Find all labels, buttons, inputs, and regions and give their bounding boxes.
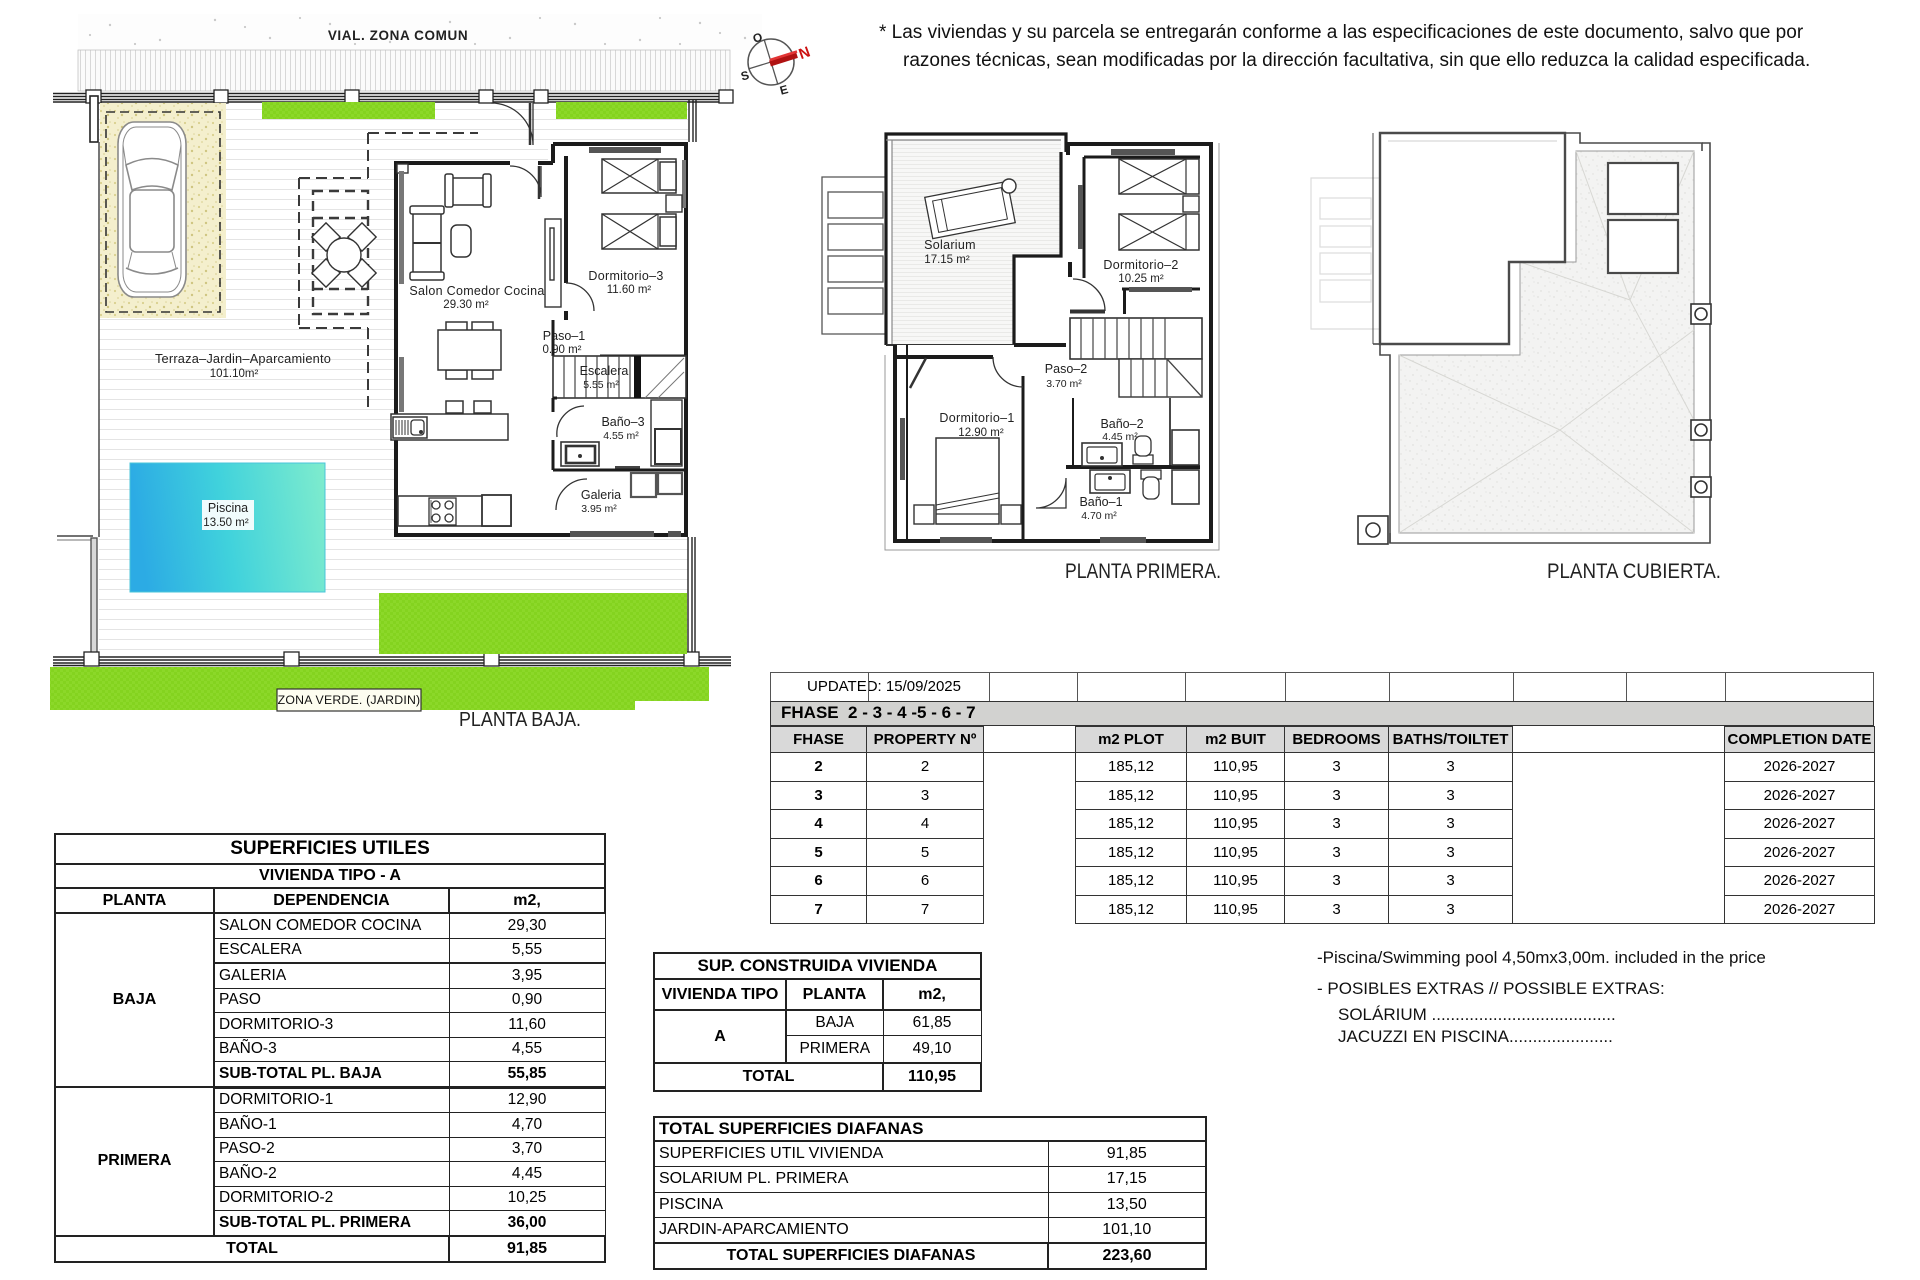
svg-text:12.90 m²: 12.90 m² [958,427,1004,439]
svg-text:VIAL. ZONA COMUN: VIAL. ZONA COMUN [328,28,468,43]
svg-text:Baño–1: Baño–1 [1079,495,1122,509]
svg-text:Dormitorio–3: Dormitorio–3 [588,269,663,283]
svg-text:PLANTA BAJA.: PLANTA BAJA. [459,709,581,731]
svg-text:11.60 m²: 11.60 m² [607,284,652,296]
svg-text:Baño–3: Baño–3 [601,415,644,429]
svg-text:Paso–2: Paso–2 [1045,362,1087,376]
svg-text:3.95 m²: 3.95 m² [581,503,617,515]
svg-text:PLANTA CUBIERTA.: PLANTA CUBIERTA. [1547,560,1721,583]
svg-text:Dormitorio–2: Dormitorio–2 [1103,258,1178,272]
svg-text:Galeria: Galeria [581,488,621,502]
svg-text:10.25 m²: 10.25 m² [1118,273,1164,285]
svg-text:ZONA VERDE. (JARDIN): ZONA VERDE. (JARDIN) [278,693,421,707]
svg-text:101.10m²: 101.10m² [210,368,259,380]
svg-text:E: E [778,82,789,98]
svg-text:Paso–1: Paso–1 [543,329,585,343]
svg-text:13.50 m²: 13.50 m² [203,517,249,529]
svg-text:3.70 m²: 3.70 m² [1046,378,1082,390]
svg-text:Terraza–Jardin–Aparcamiento: Terraza–Jardin–Aparcamiento [155,351,331,366]
svg-text:4.55 m²: 4.55 m² [603,430,639,442]
svg-text:Dormitorio–1: Dormitorio–1 [939,411,1014,425]
svg-text:Salon Comedor Cocina: Salon Comedor Cocina [409,284,544,298]
svg-text:5.55 m²: 5.55 m² [583,379,619,391]
svg-text:Solarium: Solarium [924,238,976,252]
svg-text:Baño–2: Baño–2 [1100,417,1143,431]
svg-text:N: N [797,43,813,63]
svg-text:0.90 m²: 0.90 m² [543,344,582,356]
svg-text:Escalera: Escalera [580,364,629,378]
svg-text:17.15 m²: 17.15 m² [924,254,970,266]
svg-text:4.45 m²: 4.45 m² [1102,431,1138,443]
svg-text:PLANTA PRIMERA.: PLANTA PRIMERA. [1065,560,1221,583]
svg-text:29.30 m²: 29.30 m² [443,299,489,311]
svg-text:Piscina: Piscina [208,501,248,515]
svg-text:4.70 m²: 4.70 m² [1081,510,1117,522]
